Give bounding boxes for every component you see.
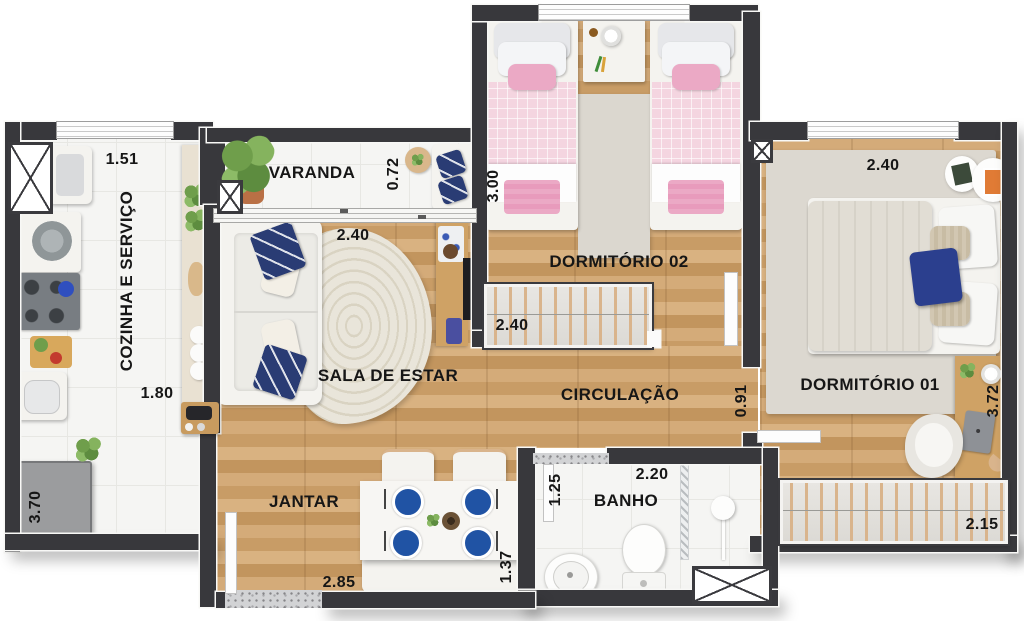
dim-dorm02-height: 3.00 (485, 170, 503, 203)
tv (463, 258, 471, 320)
bench-pillow-1 (435, 149, 467, 180)
bench-pillow-2 (437, 175, 469, 206)
bedroom2-wardrobe (484, 284, 652, 348)
sofa-seat-divider (234, 311, 318, 313)
dim-banho-width: 2.20 (636, 466, 669, 484)
washer-door (32, 221, 72, 261)
stove (18, 273, 80, 330)
kitchen-window (56, 121, 174, 139)
dim-jantar-depth: 1.37 (498, 551, 516, 584)
plate-4 (462, 527, 494, 559)
book-dark (951, 162, 973, 185)
dim-dorm01-wardrobe: 2.15 (966, 516, 999, 534)
washing-machine (18, 212, 81, 272)
bedroom2-door (724, 272, 738, 346)
bedroom2-door-jamb (647, 331, 660, 347)
wall-bathroom-top (607, 448, 778, 464)
dim-banho-height: 1.25 (547, 474, 565, 507)
shower-head (711, 496, 735, 520)
wardrobe1-rail (783, 510, 1005, 511)
centerpiece-board (442, 512, 460, 530)
cutlery-2 (496, 489, 498, 509)
dim-dorm02-wardrobe: 2.40 (496, 317, 529, 335)
dining-chair-1 (382, 449, 434, 485)
wall-bedroom2-right (743, 12, 760, 367)
shaft-bedrooms (751, 139, 773, 163)
shaft-balcony-column (217, 180, 243, 214)
dim-cozinha-left: 3.70 (27, 491, 45, 524)
dim-sala-width: 2.40 (337, 227, 370, 245)
bedroom2-window (538, 4, 690, 21)
chair-seat (915, 423, 953, 467)
bathroom-threshold (533, 453, 609, 464)
floor-plan: COZINHA E SERVIÇO 1.51 1.80 3.70 VARANDA… (0, 0, 1024, 621)
nightstand-dish (589, 28, 598, 37)
nightstand-lamp (601, 26, 621, 46)
toilet-bowl (622, 524, 666, 576)
wardrobe2-rail (487, 314, 649, 315)
bedroom1-window (807, 121, 959, 139)
dining-chair-2 (453, 449, 506, 485)
centerpiece-herb (426, 513, 441, 528)
dim-jantar-width: 2.85 (323, 574, 356, 592)
sink-basin (24, 380, 60, 414)
room-label-circulacao: CIRCULAÇÃO (561, 385, 679, 405)
toilet (620, 524, 666, 594)
coffee-cart (181, 402, 219, 434)
sliding-door-handle-2 (418, 215, 426, 219)
laundry-tank (48, 146, 92, 204)
room-label-dorm02: DORMITÓRIO 02 (549, 252, 688, 272)
dim-dorm01-width: 2.40 (867, 157, 900, 175)
console-bowl (443, 244, 458, 259)
bedB-quilt (652, 82, 740, 168)
shaft-kitchen (8, 142, 53, 214)
plate-2 (462, 486, 494, 518)
balcony-bench (432, 144, 474, 210)
laptop-dot (976, 429, 981, 434)
room-label-jantar: JANTAR (269, 492, 339, 512)
dim-varanda-depth: 0.72 (385, 158, 403, 191)
balcony-tray (405, 147, 431, 173)
flush-button (640, 580, 647, 587)
entrance-door (225, 512, 237, 594)
cutting-board (30, 336, 72, 368)
cutlery-1 (384, 489, 386, 509)
kitchen-sink (14, 372, 67, 420)
shower-glass-partition (680, 462, 689, 560)
dim-dorm01-height: 3.72 (985, 385, 1003, 418)
bedroom2-rug (578, 94, 650, 258)
dining-table (360, 481, 522, 560)
bedA-throw-pink (504, 180, 560, 214)
nightstand-pencil-2 (601, 57, 606, 72)
room-label-varanda: VARANDA (269, 163, 356, 183)
cutlery-4 (496, 531, 498, 551)
sofa (216, 219, 322, 405)
dim-circulacao-width: 0.91 (733, 385, 751, 418)
desk-lamp (981, 364, 1001, 384)
greens (34, 338, 48, 352)
wall-kitchen-bottom (5, 534, 213, 550)
bedroom2-nightstand (583, 20, 645, 82)
tank-basin (56, 154, 84, 196)
dim-cozinha-mid: 1.80 (141, 385, 174, 403)
plate-3 (390, 527, 422, 559)
bed1-blue-pillow (909, 247, 963, 306)
blue-pouf (446, 318, 462, 344)
tomato (50, 352, 62, 364)
twin-bed-right (650, 18, 742, 230)
wall-bedroom1-top-left (750, 122, 808, 140)
wall-bedroom2-top-left (472, 5, 540, 21)
dim-cozinha-top: 1.51 (106, 151, 139, 169)
sliding-door-handle-1 (340, 209, 348, 213)
sink-faucet (567, 572, 573, 578)
wall-kitchen-entry (200, 433, 216, 607)
coffee-machine (186, 406, 212, 420)
bedroom1-wardrobe (780, 480, 1008, 544)
stove-knob (58, 281, 74, 297)
bedB-cushion-pink (672, 64, 720, 90)
cup-1 (185, 423, 193, 431)
room-label-cozinha: COZINHA E SERVIÇO (117, 191, 137, 372)
room-label-banho: BANHO (594, 491, 658, 511)
double-bed (808, 198, 1000, 354)
plate-1 (392, 486, 424, 518)
bedA-quilt (488, 82, 576, 168)
shaft-bathroom (692, 566, 772, 604)
bedroom1-door (757, 430, 821, 443)
bread-item (188, 262, 205, 296)
kitchen-plant (74, 436, 104, 464)
desk-plant (959, 362, 977, 380)
room-label-dorm01: DORMITÓRIO 01 (800, 375, 939, 395)
wall-bathroom-left (518, 448, 535, 605)
cutlery-3 (384, 531, 386, 551)
tray-succulent (411, 153, 425, 167)
bedB-throw-pink (668, 180, 724, 214)
cup-2 (197, 423, 205, 431)
entrance-threshold (225, 590, 322, 608)
room-label-sala: SALA DE ESTAR (318, 366, 458, 386)
bedA-cushion-pink (508, 64, 556, 90)
wall-kitchen-living (204, 205, 220, 433)
wall-dining-bottom (322, 592, 535, 608)
